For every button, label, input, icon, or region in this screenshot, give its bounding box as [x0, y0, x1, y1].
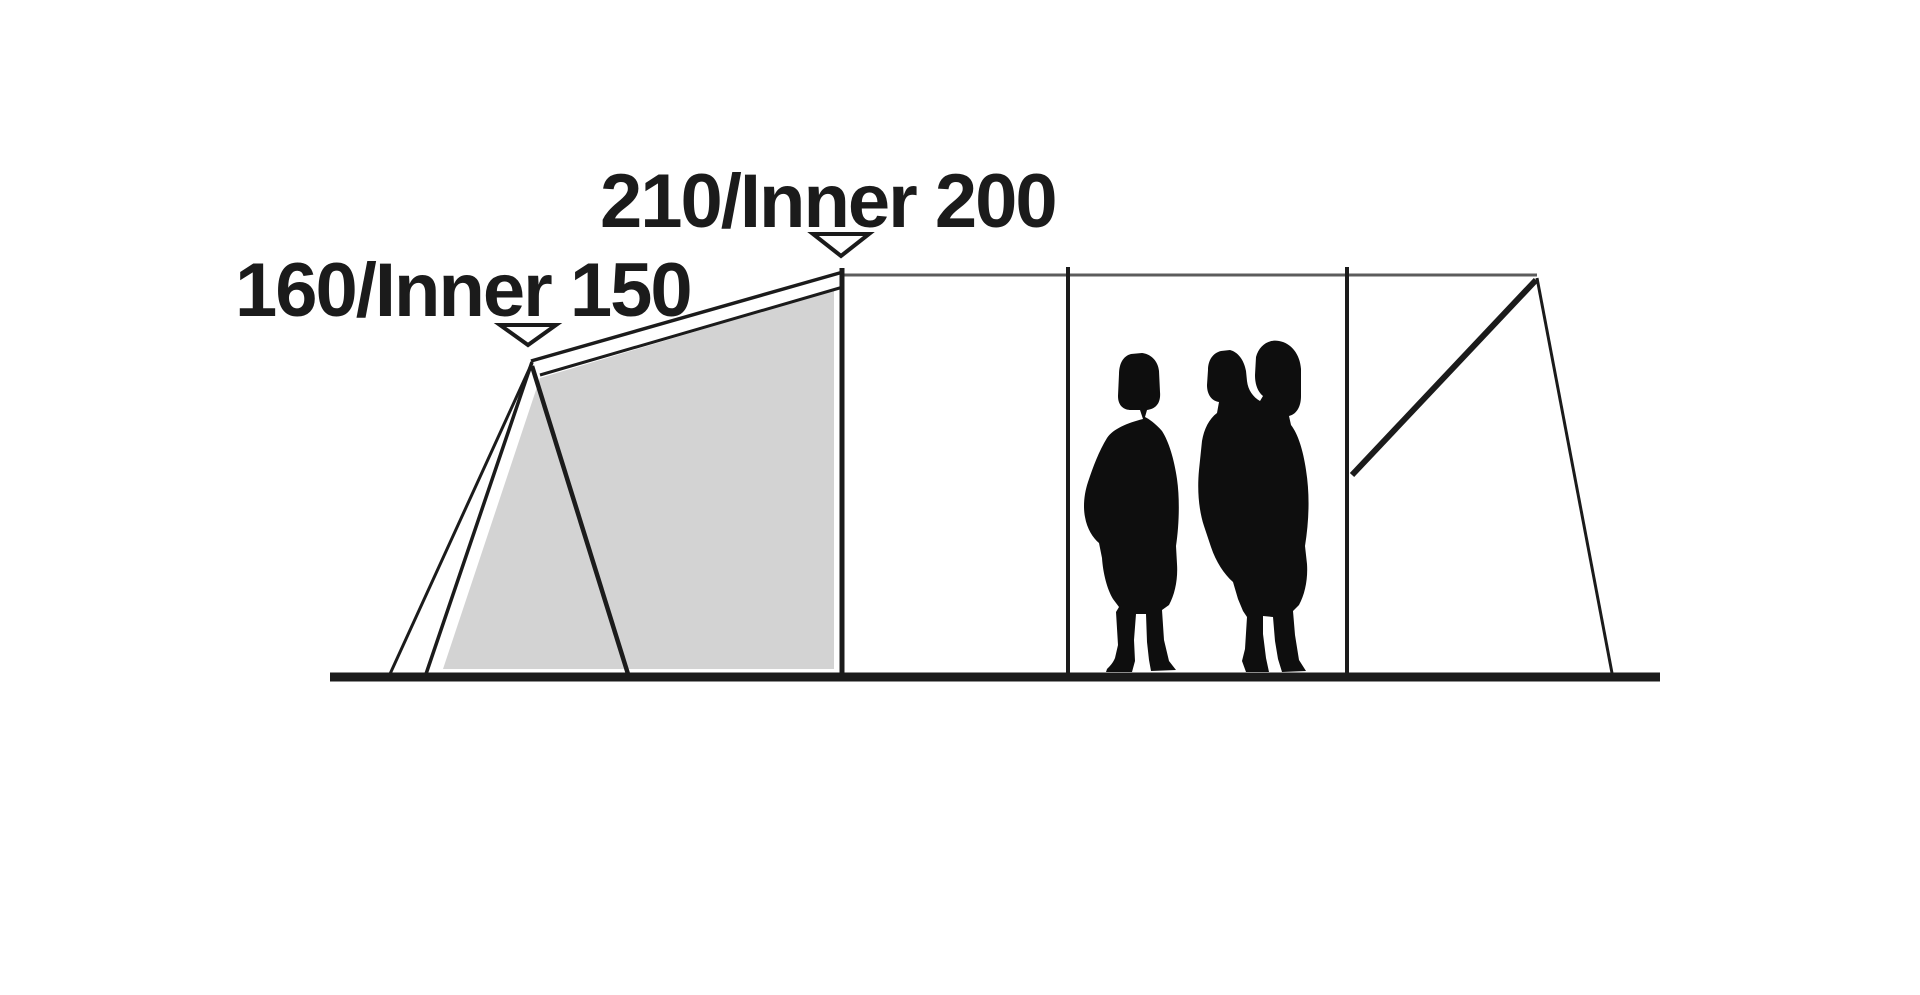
rear-diagonal-line: [1352, 280, 1536, 475]
rear-guy-line: [1537, 278, 1612, 673]
tent-dimension-diagram: 210/Inner 200 160/Inner 150: [0, 0, 1920, 995]
main-peak-height-label: 210/Inner 200: [600, 159, 1056, 244]
family-silhouette: [1084, 341, 1309, 672]
adult-with-child-silhouette: [1198, 341, 1308, 672]
side-peak-height-label: 160/Inner 150: [235, 248, 691, 333]
diagram-canvas: 210/Inner 200 160/Inner 150: [0, 0, 1920, 995]
adult-silhouette: [1084, 353, 1179, 672]
